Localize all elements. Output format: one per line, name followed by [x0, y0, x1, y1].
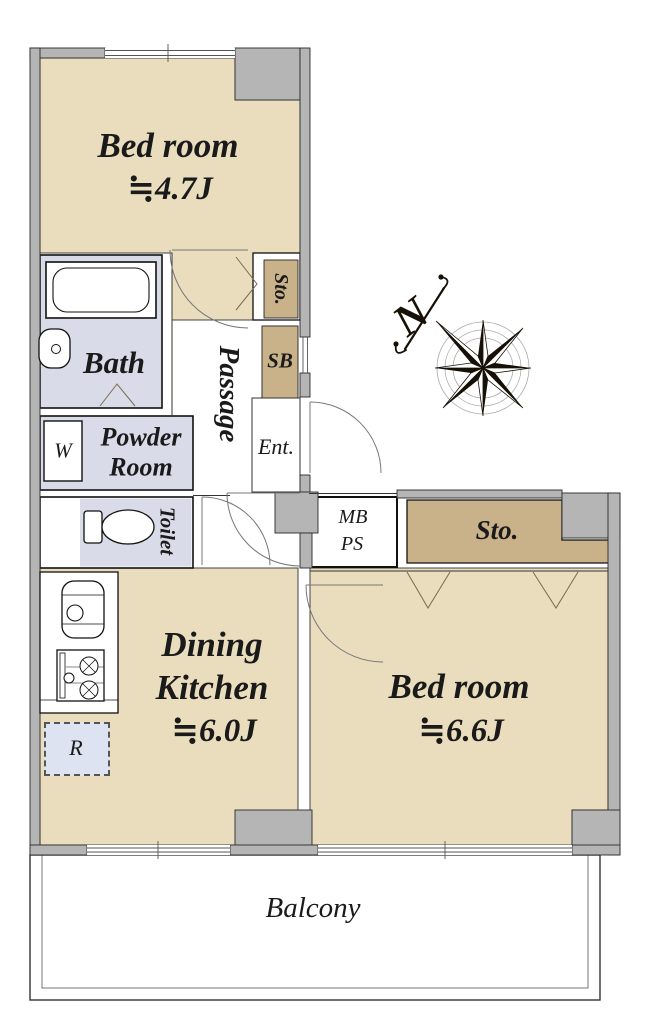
toilet-label: Toilet [155, 507, 178, 555]
wall-right-lower [608, 493, 620, 855]
washer-label: W [54, 439, 72, 462]
bath-label: Bath [83, 346, 145, 380]
pillar-top [235, 48, 300, 100]
compass-north: N [383, 274, 448, 353]
balcony-label: Balcony [265, 893, 360, 925]
powder-room-label-2: Room [109, 454, 173, 483]
refrigerator-label: R [69, 736, 82, 760]
wall-bottom-3 [572, 845, 620, 855]
wall-stub-mbps [300, 533, 312, 568]
entrance-label: Ent. [258, 435, 294, 459]
dining-kitchen-label-1: Dining [161, 626, 262, 665]
stove-icon [57, 650, 104, 701]
bathtub-icon [46, 262, 156, 318]
bedroom2-floor [310, 568, 608, 845]
balcony-outline [30, 855, 600, 1000]
wall-right-upper-2 [300, 373, 310, 397]
wall-extension-top [397, 490, 562, 498]
bedroom1-name: Bed room [98, 127, 239, 166]
wall-right-upper-3 [300, 475, 310, 493]
toilet-icon [84, 510, 154, 544]
dining-kitchen-size: ≒6.0J [171, 713, 256, 749]
bedroom2-size: ≒6.6J [418, 713, 503, 749]
pipe-shaft-label: PS [341, 533, 363, 555]
bath-sink-icon [39, 329, 70, 368]
dining-kitchen-label-2: Kitchen [156, 669, 269, 708]
wall-right-upper-1 [300, 48, 310, 337]
compass-north-label: N [383, 286, 441, 346]
bedroom1-size: ≒4.7J [127, 171, 212, 207]
window-right-small [303, 337, 308, 373]
passage-label: Passage [212, 346, 244, 443]
pillar-entrance [275, 492, 318, 533]
kitchen-sink-icon [62, 581, 104, 638]
floor-plan: N Bed room ≒4.7J Bath Powder Room W Toil… [0, 0, 645, 1018]
storage-right-label: Sto. [476, 516, 519, 546]
wall-top-left [30, 48, 105, 58]
bedroom2-name: Bed room [389, 668, 530, 707]
wall-bottom-1 [30, 845, 87, 855]
storage-top-label: Sto. [270, 273, 292, 305]
meter-box-label: MB [339, 506, 368, 528]
compass-rose: N [383, 274, 531, 416]
shoe-box-label: SB [267, 349, 293, 372]
wall-left [30, 48, 40, 855]
powder-room-label-1: Powder [101, 424, 182, 453]
wall-bottom-2 [230, 845, 318, 855]
